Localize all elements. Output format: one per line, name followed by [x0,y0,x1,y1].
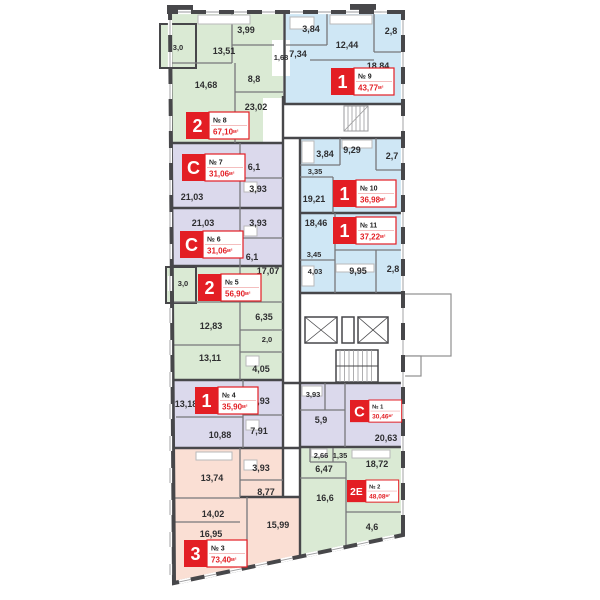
balcony-outline [403,294,451,356]
svg-text:С: С [187,158,200,178]
room-area-label: 2,66 [314,451,329,460]
svg-text:1: 1 [339,184,349,204]
floor-plan: 3,0 13,51 3,99 1,68 8,8 14,68 23,02 3,84… [0,0,600,600]
room-area-label: 6,1 [248,162,261,172]
room-area-label: 21,03 [181,192,204,202]
bathtub-icon [302,141,314,163]
room-area-label: 9,29 [343,145,361,155]
room-area-label: 3,45 [307,250,322,259]
room-area-label: 16,6 [316,493,334,503]
floor-plan-page: 3,0 13,51 3,99 1,68 8,8 14,68 23,02 3,84… [0,0,600,600]
room-area-label: 14,02 [202,509,225,519]
room-area-label: 1,68 [274,53,289,62]
svg-text:№ 4: № 4 [222,392,236,400]
room-area-label: 13,51 [213,46,236,56]
svg-text:№ 9: № 9 [358,73,372,81]
svg-text:№ 11: № 11 [360,222,377,230]
room-area-label: 20,63 [375,433,398,443]
room-area-label: 6,47 [315,464,333,474]
room-area-label: 3,0 [178,279,188,288]
balcony-outline [403,356,421,376]
room-area-label: 5,9 [315,415,328,425]
room-area-label: 4,03 [308,267,323,276]
staircase-icon [336,350,378,382]
room-area-label: 4,05 [252,364,270,374]
room-area-label: 3,93 [306,390,321,399]
kitchen-counter-icon [352,450,390,458]
room-area-label: 12,83 [200,321,223,331]
svg-text:2: 2 [192,116,202,136]
room-area-label: 2,7 [386,151,399,161]
svg-text:№ 1: № 1 [372,405,384,411]
room-area-label: 10,88 [209,430,232,440]
kitchen-counter-icon [196,452,232,460]
svg-text:С: С [185,235,198,255]
room-area-label: 3,35 [308,167,323,176]
room-area-label: 9,95 [349,266,367,276]
svg-text:№ 10: № 10 [360,185,378,193]
svg-text:1: 1 [337,72,347,92]
room-area-label: 1,35 [333,451,348,460]
room-area-label: 2,8 [387,264,400,274]
apartment-3-badge[interactable]: 3 № 3 73,40м² [184,540,247,567]
room-area-label: 18,46 [305,218,328,228]
room-area-label: 23,02 [245,102,268,112]
room-area-label: 8,77 [257,487,275,497]
room-area-label: 8,8 [248,74,261,84]
room-area-label: 6,35 [255,312,273,322]
room-area-label: 3,93 [249,184,267,194]
room-area-label: 3,0 [173,43,183,52]
apartment-10-badge[interactable]: 1 № 10 36,98м² [333,180,396,207]
corridor-area [283,104,402,138]
svg-text:№ 6: № 6 [207,236,221,244]
room-area-label: 7,34 [289,49,307,59]
room-area-label: 6,1 [246,252,259,262]
svg-text:№ 7: № 7 [209,159,223,167]
svg-text:№ 3: № 3 [211,545,225,553]
apartment-9-badge[interactable]: 1 № 9 43,77м² [331,68,394,95]
elevator-icon [342,317,354,343]
svg-text:3: 3 [190,544,200,564]
room-area-label: 13,74 [201,473,224,483]
svg-text:№ 8: № 8 [213,117,227,125]
apartment-1-badge[interactable]: С № 1 30,46м² [350,400,402,422]
room-area-label: 3,93 [249,218,267,228]
exterior-structures [403,294,451,376]
room-area-label: 12,44 [336,40,359,50]
apartment-7-badge[interactable]: С № 7 31,06м² [182,154,245,181]
apartment-5-badge[interactable]: 2 № 5 56,90м² [198,274,261,301]
staircase-icon [344,106,368,131]
room-area-label: 2,0 [262,335,272,344]
room-area-label: 15,99 [267,520,290,530]
kitchen-counter-icon [198,15,250,24]
room-area-label: 3,84 [316,149,334,159]
room-area-label: 16,95 [200,529,223,539]
room-area-label: 3,84 [302,24,320,34]
apartment-2-badge[interactable]: 2Е № 2 48,08м² [347,480,399,502]
apartment-6-badge[interactable]: С № 6 31,06м² [180,231,243,258]
room-area-label: 21,03 [192,218,215,228]
room-area-label: 3,99 [237,25,255,35]
svg-text:2Е: 2Е [350,487,363,498]
room-area-label: 7,91 [250,426,268,436]
apartment-8-badge[interactable]: 2 № 8 67,10м² [186,112,249,139]
room-area-label: 3,93 [252,463,270,473]
room-area-label: 4,6 [366,522,379,532]
svg-text:1: 1 [201,391,211,411]
room-area-label: 14,68 [195,80,218,90]
apartment-4-badge[interactable]: 1 № 4 35,90м² [195,387,258,414]
room-area-label: 13,11 [199,353,221,363]
kitchen-counter-icon [330,15,372,24]
room-area-label: 2,8 [385,26,398,36]
room-area-label: 19,21 [303,194,326,204]
svg-text:№ 2: № 2 [369,485,380,491]
svg-text:№ 5: № 5 [225,279,239,287]
apartment-11-badge[interactable]: 1 № 11 37,22м² [333,217,396,244]
svg-text:1: 1 [339,221,349,241]
room-area-label: 13,18 [175,399,198,409]
room-area-label: 18,72 [366,459,389,469]
svg-text:С: С [354,404,365,420]
svg-text:2: 2 [204,278,214,298]
